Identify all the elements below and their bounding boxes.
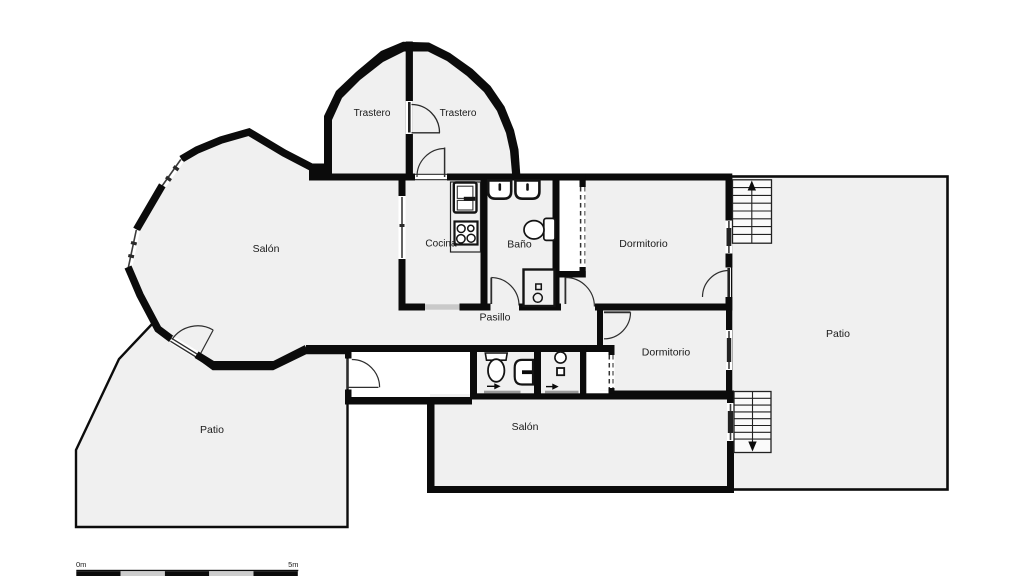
svg-text:Salón: Salón xyxy=(253,243,280,255)
svg-text:Trastero: Trastero xyxy=(354,108,391,119)
svg-text:0m: 0m xyxy=(76,560,86,569)
svg-text:5m: 5m xyxy=(288,560,298,569)
svg-text:Cocina: Cocina xyxy=(425,239,457,250)
svg-text:Dormitorio: Dormitorio xyxy=(619,238,668,250)
svg-text:Patio: Patio xyxy=(826,328,850,340)
svg-text:Dormitorio: Dormitorio xyxy=(642,347,691,359)
svg-text:Patio: Patio xyxy=(200,424,224,436)
svg-text:Pasillo: Pasillo xyxy=(480,312,511,324)
svg-text:Baño: Baño xyxy=(507,239,532,251)
svg-text:Salón: Salón xyxy=(512,421,539,433)
svg-text:Trastero: Trastero xyxy=(440,108,477,119)
